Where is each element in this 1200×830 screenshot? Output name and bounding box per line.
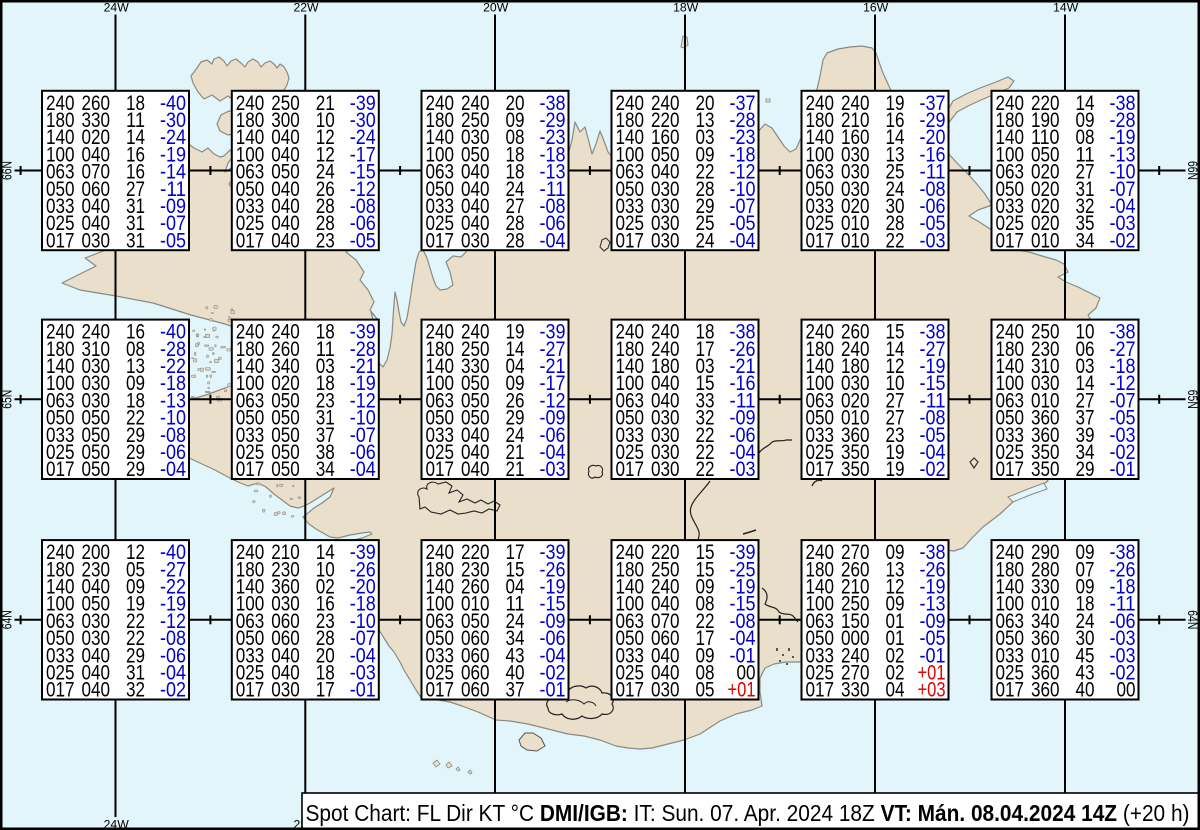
svg-text:22: 22 <box>886 229 905 252</box>
svg-text:04: 04 <box>886 679 905 702</box>
svg-text:-05: -05 <box>350 229 376 252</box>
svg-text:-04: -04 <box>730 229 756 252</box>
svg-text:Spot Chart: FL Dir KT °C DMI/I: Spot Chart: FL Dir KT °C DMI/IGB: IT: Su… <box>306 800 1190 826</box>
svg-text:030: 030 <box>651 458 680 481</box>
svg-text:017: 017 <box>806 229 835 252</box>
svg-text:017: 017 <box>616 679 645 702</box>
svg-text:050: 050 <box>271 458 300 481</box>
svg-text:19: 19 <box>886 458 905 481</box>
svg-text:017: 017 <box>426 229 455 252</box>
svg-text:-04: -04 <box>160 458 186 481</box>
svg-text:22: 22 <box>696 458 715 481</box>
svg-text:24: 24 <box>696 229 715 252</box>
svg-text:23: 23 <box>316 229 335 252</box>
svg-text:010: 010 <box>1031 229 1060 252</box>
svg-text:-03: -03 <box>920 229 946 252</box>
svg-text:017: 017 <box>616 458 645 481</box>
svg-text:017: 017 <box>806 679 835 702</box>
svg-text:030: 030 <box>651 229 680 252</box>
svg-text:32: 32 <box>126 679 145 702</box>
svg-text:017: 017 <box>426 679 455 702</box>
svg-text:31: 31 <box>126 229 145 252</box>
svg-text:+01: +01 <box>728 679 756 702</box>
svg-text:-01: -01 <box>540 679 566 702</box>
svg-text:030: 030 <box>271 679 300 702</box>
svg-text:017: 017 <box>46 679 75 702</box>
svg-text:28: 28 <box>506 229 525 252</box>
svg-text:-02: -02 <box>920 458 946 481</box>
svg-text:030: 030 <box>82 229 111 252</box>
svg-text:00: 00 <box>1117 679 1136 702</box>
svg-text:017: 017 <box>236 458 264 481</box>
svg-text:060: 060 <box>461 679 490 702</box>
svg-text:017: 017 <box>616 229 645 252</box>
svg-text:040: 040 <box>271 229 300 252</box>
svg-text:-01: -01 <box>350 679 376 702</box>
svg-text:34: 34 <box>316 458 335 481</box>
svg-text:040: 040 <box>461 458 490 481</box>
svg-text:29: 29 <box>126 458 145 481</box>
svg-text:-04: -04 <box>540 229 566 252</box>
svg-text:017: 017 <box>426 458 455 481</box>
svg-text:017: 017 <box>236 229 264 252</box>
svg-text:-02: -02 <box>1110 229 1136 252</box>
svg-text:050: 050 <box>82 458 111 481</box>
svg-text:-03: -03 <box>730 458 756 481</box>
svg-text:-02: -02 <box>160 679 186 702</box>
svg-text:017: 017 <box>46 458 75 481</box>
svg-text:017: 017 <box>46 229 75 252</box>
svg-text:017: 017 <box>996 679 1025 702</box>
svg-text:017: 017 <box>996 229 1025 252</box>
svg-text:017: 017 <box>996 458 1025 481</box>
svg-text:-01: -01 <box>1110 458 1136 481</box>
svg-text:017: 017 <box>236 679 264 702</box>
svg-text:350: 350 <box>841 458 870 481</box>
svg-text:360: 360 <box>1031 679 1060 702</box>
svg-text:-03: -03 <box>540 458 566 481</box>
svg-text:21: 21 <box>506 458 525 481</box>
svg-text:37: 37 <box>506 679 525 702</box>
svg-text:05: 05 <box>696 679 715 702</box>
svg-text:017: 017 <box>806 458 835 481</box>
svg-text:-05: -05 <box>160 229 186 252</box>
svg-text:17: 17 <box>316 679 335 702</box>
svg-text:030: 030 <box>461 229 490 252</box>
svg-text:040: 040 <box>82 679 111 702</box>
svg-text:-04: -04 <box>350 458 376 481</box>
svg-text:+03: +03 <box>918 679 946 702</box>
svg-text:350: 350 <box>1031 458 1060 481</box>
svg-text:010: 010 <box>841 229 870 252</box>
svg-text:29: 29 <box>1076 458 1095 481</box>
svg-text:030: 030 <box>651 679 680 702</box>
svg-text:34: 34 <box>1076 229 1095 252</box>
svg-text:40: 40 <box>1076 679 1095 702</box>
svg-text:330: 330 <box>841 679 870 702</box>
